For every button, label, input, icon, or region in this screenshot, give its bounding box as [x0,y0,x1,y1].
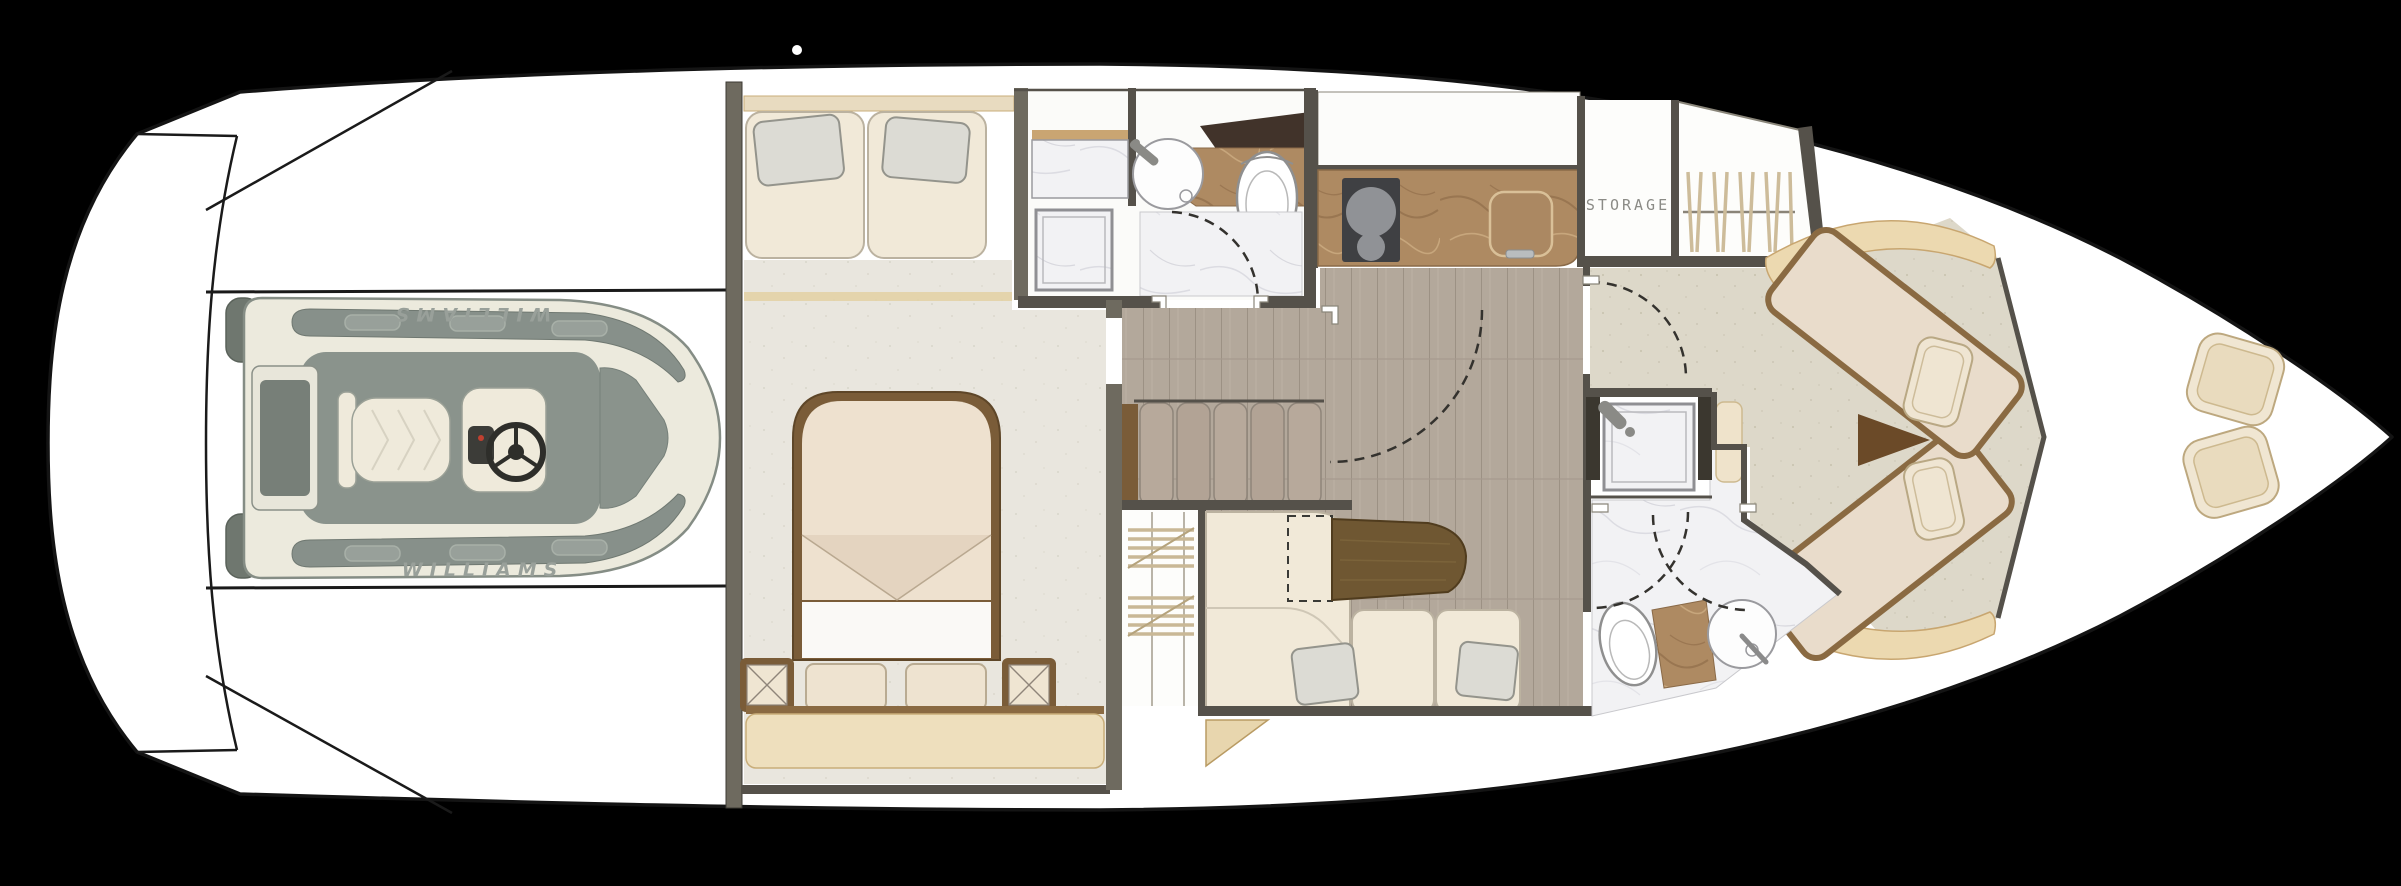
floorplan-stage: WILLIAMS WILLIAMS [0,0,2401,886]
galley-upper-cabinets [1318,92,1580,168]
door-jamb-fwd-head-right [1740,504,1756,512]
master-sofa-pillow-right [882,117,971,184]
aft-head-bottom-wall-left [1018,296,1162,308]
companionway-stairs [1122,401,1324,505]
aft-bulkhead [726,82,742,808]
aft-shower [1036,210,1112,290]
storage-right-wall [1671,100,1679,260]
master-bench-edge [746,706,1104,714]
nightstand-left [740,658,794,712]
tender-brand-bottom: WILLIAMS [402,559,565,581]
aft-head [1014,88,1316,312]
salon-pillow-left [1291,642,1359,705]
door-jamb-fwd-head-left [1592,504,1608,512]
master-carpet-trim [744,292,1012,301]
aft-head-left-wall [1014,88,1028,300]
galley-left-wall [1310,90,1318,268]
tender-engine-hatch [260,380,310,496]
salon-aft-wall [1198,706,1594,716]
storage-room: STORAGE [1577,96,1679,262]
aft-vanity-backsplash [1032,130,1128,140]
fwd-shower-wall-left [1586,396,1600,480]
fwd-shower-wall-top [1586,388,1712,397]
bow-light-dot [792,45,802,55]
master-bed-foot-board [802,602,991,658]
yacht-floorplan: WILLIAMS WILLIAMS [0,0,2401,886]
tender-brand-top: WILLIAMS [389,303,552,325]
wardrobe-salon-wall [1198,508,1206,712]
tender-dash-light [478,435,484,441]
door-jamb-bow-entry [1583,276,1599,284]
storage-label: STORAGE [1586,196,1670,214]
stairs-lower-wall [1122,500,1352,510]
master-foot-cushion-left [806,664,886,710]
master-sofa-pillow-left [753,114,845,187]
galley-sink [1490,192,1552,258]
hanging-wardrobe-mid [1122,510,1198,706]
salon-pillow-right [1455,641,1518,701]
aft-head-floor [1140,212,1302,296]
cooktop-burners-icon [1342,178,1400,262]
salon-seat-1 [1352,610,1434,712]
fwd-shower-wall-right [1698,396,1712,480]
fwd-shower [1596,398,1694,490]
galley [1310,90,1580,268]
tender-jockey-seat [352,398,450,482]
nightstand-right [1002,658,1056,712]
master-door-gap [1106,318,1122,384]
williams-jet-tender: WILLIAMS WILLIAMS [226,298,720,581]
storage-left-wall [1577,96,1585,262]
master-foot-cushion-right [906,664,986,710]
master-aft-wall [742,785,1110,794]
master-sofa-back [744,96,1014,111]
fwd-head-counter-wedge [1652,600,1716,688]
fwd-head-bench [1716,402,1742,482]
aft-vanity-top [1032,140,1128,198]
master-bench [746,714,1104,768]
